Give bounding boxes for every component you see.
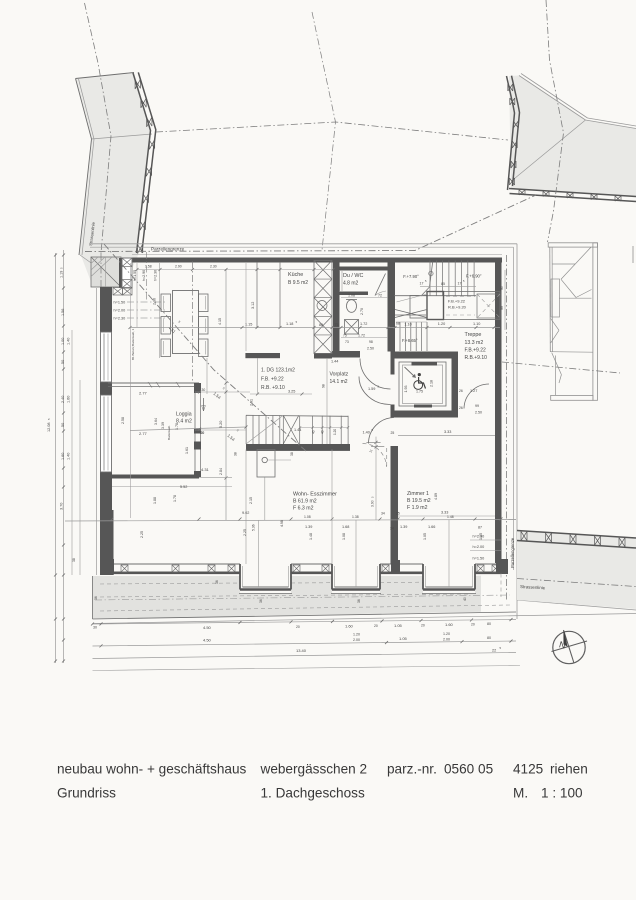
- svg-text:80: 80: [487, 622, 491, 626]
- svg-text:2.84: 2.84: [219, 468, 223, 475]
- svg-text:0560 05: 0560 05: [444, 762, 493, 777]
- svg-text:34: 34: [390, 527, 394, 531]
- svg-text:75: 75: [335, 323, 339, 327]
- svg-text:1.05: 1.05: [399, 636, 408, 641]
- svg-text:25: 25: [396, 512, 400, 516]
- svg-text:2.25: 2.25: [243, 529, 247, 536]
- svg-text:1.40: 1.40: [67, 453, 71, 460]
- svg-text:riehen: riehen: [550, 762, 588, 777]
- svg-text:5.36: 5.36: [252, 524, 256, 531]
- svg-text:3.64: 3.64: [154, 418, 158, 425]
- svg-text:5.20: 5.20: [219, 421, 223, 428]
- svg-text:1.61: 1.61: [185, 447, 189, 454]
- svg-text:h=1.50: h=1.50: [473, 557, 485, 561]
- svg-text:F.B.+9.22: F.B.+9.22: [465, 348, 486, 354]
- svg-text:2.90: 2.90: [175, 265, 182, 269]
- svg-text:F.+6.90°: F.+6.90°: [466, 274, 482, 279]
- svg-text:5.52: 5.52: [180, 485, 187, 489]
- svg-text:1.56: 1.56: [61, 309, 65, 316]
- svg-text:50: 50: [61, 423, 65, 427]
- svg-text:2.00: 2.00: [443, 638, 450, 642]
- svg-text:1.10: 1.10: [404, 323, 411, 327]
- svg-text:2.40: 2.40: [61, 396, 65, 403]
- svg-text:87: 87: [478, 526, 482, 530]
- svg-text:98: 98: [369, 340, 373, 344]
- svg-text:B1 Beton/,Bodenwelt, 1: B1 Beton/,Bodenwelt, 1: [131, 328, 135, 360]
- svg-text:Grundriss: Grundriss: [57, 786, 116, 801]
- svg-text:85: 85: [441, 282, 445, 286]
- svg-text:B 9.5 m2: B 9.5 m2: [288, 280, 308, 286]
- svg-text:3.39: 3.39: [161, 422, 165, 429]
- svg-text:Vorplatz: Vorplatz: [330, 372, 349, 378]
- svg-text:20: 20: [201, 431, 205, 435]
- svg-text:1.59: 1.59: [368, 387, 375, 391]
- svg-text:parz.-nr.: parz.-nr.: [387, 762, 437, 777]
- svg-text:1.20: 1.20: [353, 633, 360, 637]
- svg-text:F 6.3 m2: F 6.3 m2: [293, 506, 314, 512]
- svg-text:h=2.90: h=2.90: [142, 270, 146, 281]
- svg-text:50: 50: [61, 360, 65, 364]
- svg-text:1. DG 123.1m2: 1. DG 123.1m2: [261, 368, 295, 374]
- svg-text:99: 99: [500, 306, 504, 310]
- svg-text:36: 36: [215, 580, 219, 584]
- svg-text:1.60: 1.60: [61, 453, 65, 460]
- svg-text:4.50: 4.50: [203, 625, 212, 630]
- svg-text:1.60: 1.60: [345, 624, 354, 629]
- svg-text:2.58: 2.58: [121, 417, 125, 424]
- svg-text:20: 20: [471, 623, 475, 627]
- svg-text:1.08: 1.08: [304, 515, 311, 519]
- svg-text:1.39: 1.39: [400, 525, 407, 529]
- svg-text:25: 25: [391, 431, 395, 435]
- svg-text:1.20: 1.20: [438, 322, 445, 326]
- svg-text:Zimmer 1: Zimmer 1: [407, 491, 429, 497]
- svg-text:webergässchen 2: webergässchen 2: [260, 762, 368, 777]
- svg-text:13.3 m2: 13.3 m2: [465, 340, 484, 346]
- svg-text:1.48: 1.48: [309, 533, 313, 540]
- svg-text:99: 99: [475, 404, 479, 408]
- svg-text:h=2.30: h=2.30: [154, 270, 158, 281]
- svg-text:h=2.00: h=2.00: [114, 309, 126, 313]
- svg-text:13.40: 13.40: [296, 648, 307, 653]
- svg-text:38: 38: [234, 452, 238, 456]
- svg-text:B 61.9 m2: B 61.9 m2: [293, 499, 317, 505]
- svg-text:20: 20: [421, 624, 425, 628]
- svg-text:1.44: 1.44: [294, 428, 301, 432]
- svg-text:F.+7.90°: F.+7.90°: [403, 274, 419, 279]
- svg-text:1.58: 1.58: [145, 265, 152, 269]
- svg-text:1.27: 1.27: [470, 389, 477, 393]
- svg-text:26: 26: [459, 406, 463, 410]
- svg-text:14.1 m2: 14.1 m2: [330, 379, 348, 385]
- svg-text:40: 40: [312, 430, 316, 434]
- svg-text:4.15: 4.15: [218, 318, 222, 325]
- svg-text:1.00: 1.00: [61, 338, 65, 345]
- svg-text:1.60: 1.60: [67, 396, 71, 403]
- svg-text:2.36: 2.36: [153, 298, 157, 305]
- svg-text:1.88: 1.88: [153, 497, 157, 504]
- svg-text:Treppe: Treppe: [465, 332, 482, 338]
- svg-text:1.60: 1.60: [445, 622, 454, 627]
- svg-text:F.B.+9.22: F.B.+9.22: [448, 299, 466, 304]
- svg-text:98: 98: [322, 384, 326, 388]
- svg-text:1. Dachgeschoss: 1. Dachgeschoss: [261, 786, 365, 801]
- svg-text:h=1.50: h=1.50: [114, 301, 126, 305]
- svg-text:1 : 100: 1 : 100: [541, 786, 583, 801]
- svg-text:2.70: 2.70: [360, 308, 364, 315]
- svg-text:Wohn- Esszimmer: Wohn- Esszimmer: [293, 492, 337, 498]
- svg-text:75: 75: [343, 334, 347, 338]
- svg-text:3.70: 3.70: [60, 503, 64, 510]
- svg-text:12.08: 12.08: [47, 422, 51, 432]
- svg-text:1.78: 1.78: [173, 495, 177, 502]
- svg-text:R.B.+9.10: R.B.+9.10: [465, 355, 488, 361]
- svg-text:4.50: 4.50: [203, 638, 212, 643]
- svg-text:30: 30: [202, 388, 206, 392]
- svg-text:1.38: 1.38: [352, 515, 359, 519]
- svg-text:1.68: 1.68: [342, 525, 349, 529]
- svg-text:36: 36: [94, 596, 98, 600]
- svg-text:2.30: 2.30: [210, 265, 217, 269]
- svg-text:1.48: 1.48: [447, 515, 454, 519]
- svg-text:1.66: 1.66: [428, 525, 435, 529]
- svg-text:4.89: 4.89: [434, 493, 438, 500]
- svg-text:73: 73: [345, 340, 349, 344]
- svg-text:2.18: 2.18: [430, 380, 434, 387]
- svg-text:1.18: 1.18: [286, 322, 293, 326]
- svg-text:2.77: 2.77: [139, 391, 148, 396]
- svg-text:4.98: 4.98: [280, 520, 284, 527]
- svg-text:neubau wohn- + geschäftshaus: neubau wohn- + geschäftshaus: [57, 762, 247, 777]
- svg-text:68: 68: [396, 322, 400, 326]
- svg-text:Küche: Küche: [288, 272, 303, 278]
- svg-text:2.15: 2.15: [249, 497, 253, 504]
- svg-text:1.20: 1.20: [333, 429, 337, 435]
- svg-text:3.33: 3.33: [444, 430, 451, 434]
- svg-text:34: 34: [381, 512, 385, 516]
- svg-text:17: 17: [420, 282, 424, 286]
- svg-text:1.93: 1.93: [404, 386, 408, 393]
- svg-text:Bodenwelt.: Bodenwelt.: [167, 425, 171, 440]
- svg-text:3.33: 3.33: [441, 511, 448, 515]
- svg-text:2.50: 2.50: [475, 411, 482, 415]
- svg-text:M.: M.: [513, 786, 528, 801]
- svg-text:38: 38: [72, 558, 76, 562]
- svg-text:1.40: 1.40: [363, 431, 370, 435]
- svg-text:40: 40: [321, 430, 325, 434]
- svg-text:1.19: 1.19: [60, 271, 64, 278]
- svg-text:3.12: 3.12: [251, 302, 255, 309]
- svg-text:40: 40: [463, 597, 467, 601]
- svg-text:90: 90: [500, 286, 504, 290]
- svg-text:22: 22: [492, 649, 496, 653]
- svg-text:4.8 m2: 4.8 m2: [343, 281, 359, 287]
- svg-text:1.10: 1.10: [473, 322, 480, 326]
- svg-text:1.05: 1.05: [423, 533, 427, 540]
- svg-text:1.72: 1.72: [360, 322, 367, 326]
- svg-text:4.31: 4.31: [201, 467, 210, 472]
- svg-text:h=1.55: h=1.55: [133, 270, 137, 281]
- svg-text:Loggia: Loggia: [176, 412, 192, 418]
- svg-text:h=2.30: h=2.30: [114, 317, 126, 321]
- svg-text:80: 80: [487, 636, 491, 640]
- svg-text:F.+8.65°: F.+8.65°: [402, 338, 418, 343]
- svg-text:2.50: 2.50: [367, 347, 374, 351]
- svg-text:2.25: 2.25: [140, 531, 144, 538]
- svg-text:R.B.+9.20: R.B.+9.20: [448, 305, 467, 310]
- svg-text:Parzellengrenze: Parzellengrenze: [510, 537, 515, 568]
- svg-text:20: 20: [296, 625, 300, 629]
- svg-text:1.05: 1.05: [394, 623, 403, 628]
- svg-text:20: 20: [374, 624, 378, 628]
- svg-text:F.B. +9.22: F.B. +9.22: [261, 377, 284, 383]
- svg-text:1.08: 1.08: [342, 533, 346, 540]
- svg-text:36: 36: [357, 599, 361, 603]
- svg-text:1.78: 1.78: [175, 423, 179, 430]
- svg-text:1.40: 1.40: [67, 338, 71, 345]
- svg-text:1.39: 1.39: [305, 525, 312, 529]
- svg-text:36: 36: [259, 599, 263, 603]
- svg-text:3.25: 3.25: [288, 390, 295, 394]
- svg-text:1.20: 1.20: [443, 632, 450, 636]
- svg-text:17: 17: [458, 282, 462, 286]
- svg-text:30: 30: [93, 626, 97, 630]
- svg-text:1.05: 1.05: [479, 533, 483, 540]
- svg-text:4125: 4125: [513, 762, 543, 777]
- svg-text:F 1.9 m2: F 1.9 m2: [407, 505, 428, 511]
- svg-text:1.75: 1.75: [416, 390, 423, 394]
- svg-text:72: 72: [378, 294, 382, 298]
- svg-text:1.72: 1.72: [358, 334, 365, 338]
- svg-text:86: 86: [319, 323, 323, 327]
- svg-text:B 19.5 m2: B 19.5 m2: [407, 498, 431, 504]
- svg-text:38: 38: [290, 452, 294, 456]
- svg-text:3.90: 3.90: [371, 500, 375, 507]
- svg-text:1.44: 1.44: [331, 360, 338, 364]
- svg-text:Du / WC: Du / WC: [343, 273, 363, 279]
- svg-text:1.08: 1.08: [348, 294, 355, 298]
- svg-text:h=2.00: h=2.00: [473, 545, 485, 549]
- svg-text:9.02: 9.02: [242, 511, 249, 515]
- svg-text:R.B. +9.10: R.B. +9.10: [261, 385, 285, 391]
- svg-text:2.77: 2.77: [139, 431, 148, 436]
- svg-text:26: 26: [459, 389, 463, 393]
- svg-text:2.00: 2.00: [353, 638, 360, 642]
